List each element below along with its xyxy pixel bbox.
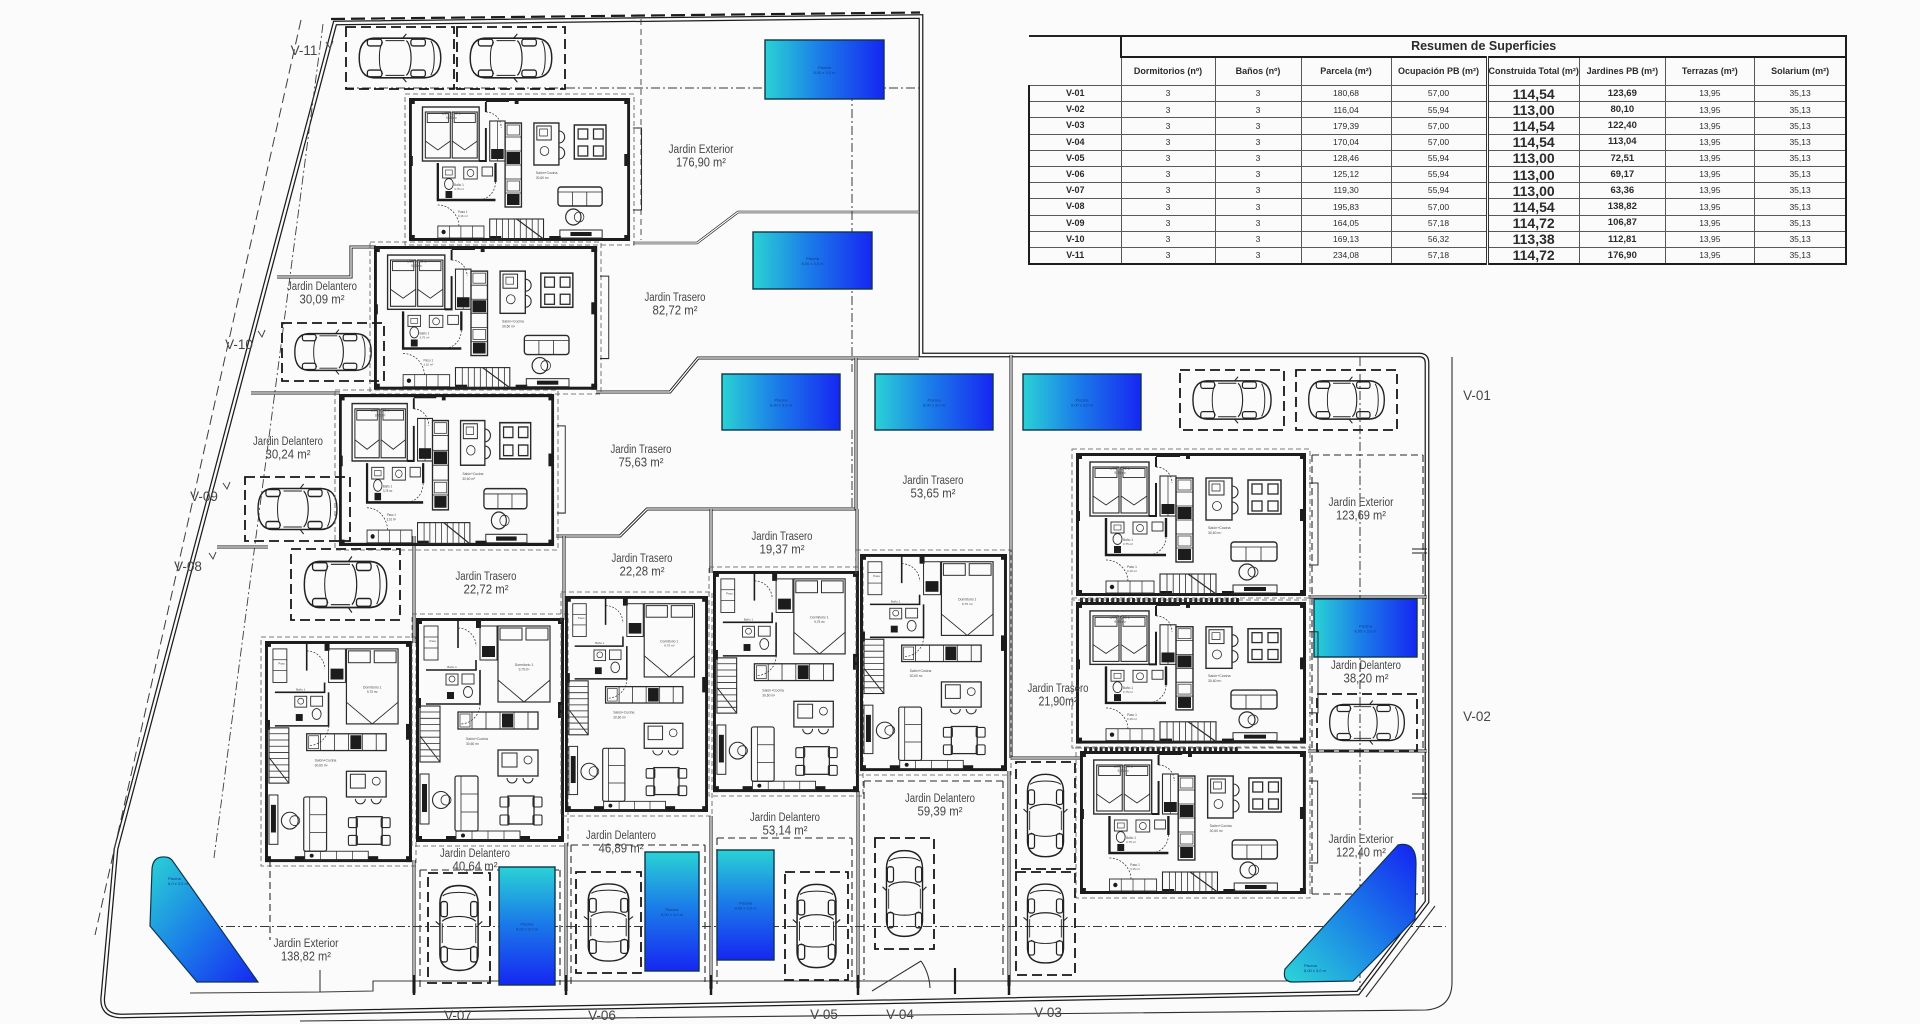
- svg-text:38,20 m²: 38,20 m²: [1344, 671, 1390, 686]
- svg-text:V-06: V-06: [588, 1008, 616, 1023]
- svg-text:30,09 m²: 30,09 m²: [300, 292, 346, 307]
- svg-text:V-03: V-03: [1034, 1005, 1062, 1020]
- svg-text:8,00 x 3,0 m: 8,00 x 3,0 m: [1304, 968, 1327, 973]
- svg-text:V-09: V-09: [190, 489, 218, 504]
- svg-text:V-05: V-05: [810, 1007, 838, 1022]
- svg-text:46,89 m²: 46,89 m²: [599, 841, 645, 856]
- svg-text:22,28 m²: 22,28 m²: [620, 564, 666, 579]
- svg-text:82,72 m²: 82,72 m²: [653, 303, 699, 318]
- svg-text:53,65 m²: 53,65 m²: [911, 486, 957, 501]
- svg-text:8,00 x 3,0 m: 8,00 x 3,0 m: [923, 403, 946, 408]
- svg-text:123,69 m²: 123,69 m²: [1336, 508, 1387, 523]
- svg-text:8,00 x 3,0 m: 8,00 x 3,0 m: [770, 403, 793, 408]
- svg-text:53,14 m²: 53,14 m²: [763, 823, 809, 838]
- svg-text:59,39 m²: 59,39 m²: [918, 804, 964, 819]
- svg-text:V-11: V-11: [291, 43, 318, 58]
- svg-text:V-01: V-01: [1463, 388, 1491, 403]
- svg-text:V-02: V-02: [1463, 709, 1491, 724]
- svg-text:8,00 x 3,0 m: 8,00 x 3,0 m: [516, 927, 539, 932]
- svg-text:30,24 m²: 30,24 m²: [266, 447, 312, 462]
- svg-text:75,63 m²: 75,63 m²: [619, 455, 665, 470]
- svg-text:138,82 m²: 138,82 m²: [281, 949, 332, 964]
- svg-text:8,0 x 3,0 m: 8,0 x 3,0 m: [168, 881, 188, 886]
- svg-text:8,00 x 3,0 m: 8,00 x 3,0 m: [661, 912, 684, 917]
- svg-text:8,00 x 3,0 m: 8,00 x 3,0 m: [1354, 629, 1377, 634]
- svg-text:V-04: V-04: [886, 1007, 914, 1022]
- svg-text:19,37 m²: 19,37 m²: [760, 542, 806, 557]
- svg-text:22,72 m²: 22,72 m²: [464, 582, 510, 597]
- svg-text:8,00 x 3,0 m: 8,00 x 3,0 m: [801, 261, 824, 266]
- svg-text:V-08: V-08: [174, 559, 202, 574]
- svg-text:8,00 x 3,0 m: 8,00 x 3,0 m: [813, 70, 836, 75]
- svg-text:122,40 m²: 122,40 m²: [1336, 845, 1387, 860]
- svg-text:V-07: V-07: [444, 1008, 472, 1023]
- svg-text:8,00 x 3,0 m: 8,00 x 3,0 m: [1071, 403, 1094, 408]
- svg-text:40,64 m²: 40,64 m²: [453, 859, 499, 874]
- svg-text:V-10: V-10: [225, 337, 253, 352]
- svg-text:21,90m²: 21,90m²: [1039, 694, 1079, 709]
- svg-text:176,90 m²: 176,90 m²: [676, 155, 727, 170]
- svg-text:8,00 x 3,0 m: 8,00 x 3,0 m: [734, 906, 757, 911]
